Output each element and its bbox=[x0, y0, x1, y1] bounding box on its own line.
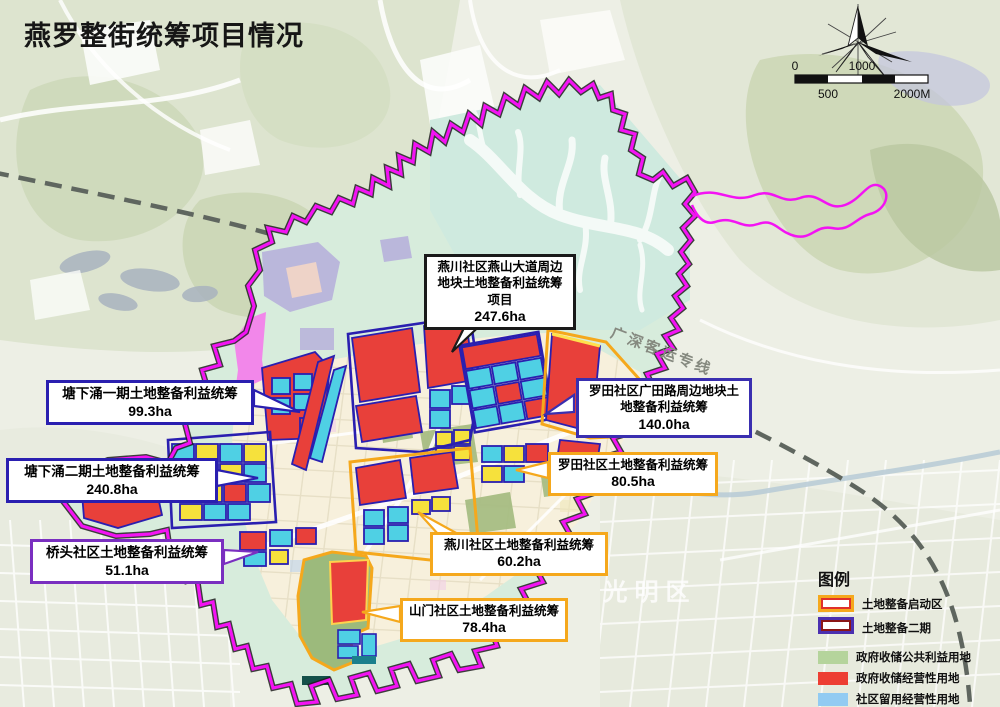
callout-name: 燕川社区燕山大道周边地块土地整备利益统筹项目 bbox=[433, 259, 567, 308]
scale-half: 500 bbox=[818, 87, 838, 101]
callout-value: 99.3ha bbox=[55, 403, 245, 421]
district-label: 光明区 bbox=[603, 579, 697, 606]
scale-end: 2000M bbox=[894, 87, 931, 101]
callout-value: 247.6ha bbox=[433, 308, 567, 326]
callout-name: 山门社区土地整备利益统筹 bbox=[409, 603, 559, 619]
callout-name: 燕川社区土地整备利益统筹 bbox=[439, 537, 599, 553]
callout-tangxiayong-phase1: 塘下涌一期土地整备利益统筹 99.3ha bbox=[46, 380, 254, 425]
phase2-swatch-icon bbox=[818, 617, 854, 634]
callout-value: 78.4ha bbox=[409, 619, 559, 637]
green-swatch-icon bbox=[818, 651, 848, 664]
legend-item-community-commercial-land: 社区留用经营性用地 bbox=[818, 691, 998, 707]
callout-tangxiayong-phase2: 塘下涌二期土地整备利益统筹 240.8ha bbox=[6, 458, 218, 503]
legend-item-startup-zone: 土地整备启动区 bbox=[818, 595, 998, 612]
callout-shanmen: 山门社区土地整备利益统筹 78.4ha bbox=[400, 598, 568, 642]
red-swatch-icon bbox=[818, 672, 848, 685]
callout-luotian-guangtian-road: 罗田社区广田路周边地块土地整备利益统筹 140.0ha bbox=[576, 378, 752, 438]
callout-qiaotou: 桥头社区土地整备利益统筹 51.1ha bbox=[30, 539, 224, 584]
callout-luotian: 罗田社区土地整备利益统筹 80.5ha bbox=[548, 452, 718, 496]
map-page: 广深客运专线 光明区 0 1000 500 2000M bbox=[0, 0, 1000, 707]
legend-item-gov-public-land: 政府收储公共利益用地 bbox=[818, 649, 998, 665]
blue-swatch-icon bbox=[818, 693, 848, 706]
legend-item-gov-commercial-land: 政府收储经营性用地 bbox=[818, 670, 998, 686]
callout-yanchuan: 燕川社区土地整备利益统筹 60.2ha bbox=[430, 532, 608, 576]
scale-mid: 1000 bbox=[849, 59, 876, 73]
legend-item-phase2: 土地整备二期 bbox=[818, 617, 998, 638]
callout-yanchuan-avenue-project: 燕川社区燕山大道周边地块土地整备利益统筹项目 247.6ha bbox=[424, 254, 576, 330]
legend: 图例 土地整备启动区 土地整备二期 政府收储公共利益用地 政府收储经营性用地 社… bbox=[818, 566, 998, 707]
callout-value: 240.8ha bbox=[15, 481, 209, 499]
callout-name: 罗田社区广田路周边地块土地整备利益统筹 bbox=[585, 383, 743, 416]
callout-name: 桥头社区土地整备利益统筹 bbox=[39, 544, 215, 562]
callout-value: 80.5ha bbox=[557, 473, 709, 491]
callout-value: 51.1ha bbox=[39, 562, 215, 580]
callout-name: 塘下涌二期土地整备利益统筹 bbox=[15, 463, 209, 481]
callout-name: 塘下涌一期土地整备利益统筹 bbox=[55, 385, 245, 403]
callout-value: 140.0ha bbox=[585, 416, 743, 434]
parcel-cluster-grid bbox=[460, 332, 554, 433]
callout-value: 60.2ha bbox=[439, 553, 599, 571]
startup-zone-swatch-icon bbox=[818, 595, 854, 612]
callout-name: 罗田社区土地整备利益统筹 bbox=[557, 457, 709, 473]
scale-zero: 0 bbox=[792, 59, 799, 73]
legend-title: 图例 bbox=[818, 566, 998, 590]
page-title: 燕罗整街统筹项目情况 bbox=[24, 14, 304, 53]
